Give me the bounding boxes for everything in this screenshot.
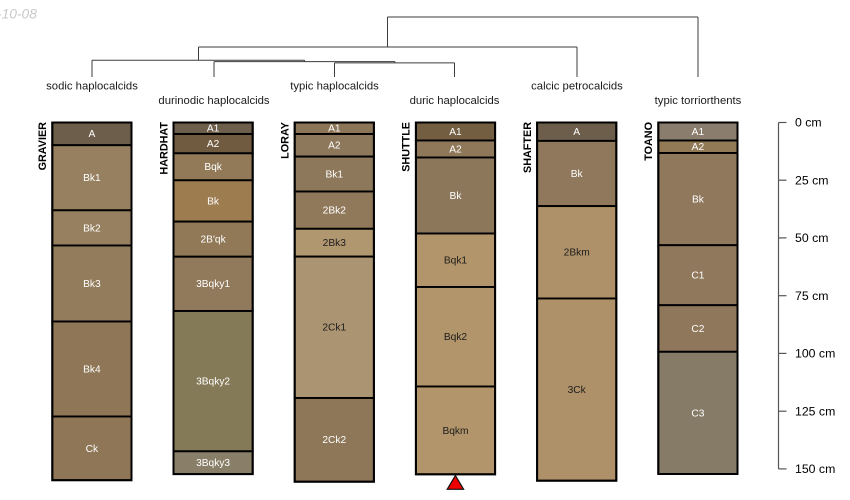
svg-text:25 cm: 25 cm [795,173,829,187]
svg-text:A2: A2 [692,142,705,153]
svg-text:2Ck2: 2Ck2 [322,435,346,446]
svg-text:Bk4: Bk4 [83,364,101,375]
svg-text:C3: C3 [691,408,704,419]
svg-text:3Bqky3: 3Bqky3 [196,458,230,469]
svg-text:Bqk1: Bqk1 [444,256,468,267]
svg-text:Bk1: Bk1 [83,173,101,184]
svg-text:durinodic haplocalcids: durinodic haplocalcids [158,95,270,107]
svg-text:typic torriorthents: typic torriorthents [655,95,742,107]
svg-text:A: A [89,129,96,140]
svg-text:HARDHAT: HARDHAT [158,122,170,175]
svg-text:C1: C1 [691,271,704,282]
svg-text:Ck: Ck [86,444,99,455]
svg-text:2Bkm: 2Bkm [564,248,590,259]
svg-text:2Bk2: 2Bk2 [323,206,347,217]
svg-text:SHUTTLE: SHUTTLE [401,122,413,172]
svg-text:A1: A1 [692,127,705,138]
svg-text:125 cm: 125 cm [795,404,835,418]
svg-text:GRAVIER: GRAVIER [37,122,49,171]
svg-text:3Ck: 3Ck [568,385,587,396]
svg-text:Bk: Bk [450,191,463,202]
svg-text:Bqkm: Bqkm [442,426,468,437]
svg-text:2Ck1: 2Ck1 [322,323,346,334]
svg-text:A: A [573,127,580,138]
svg-text:2Bk3: 2Bk3 [323,238,347,249]
svg-text:Bk2: Bk2 [83,223,101,234]
svg-text:Bqk: Bqk [204,162,222,173]
svg-text:A2: A2 [207,139,220,150]
svg-text:150 cm: 150 cm [795,462,835,476]
svg-text:50 cm: 50 cm [795,231,829,245]
svg-text:100 cm: 100 cm [795,347,835,361]
svg-text:2B'qk: 2B'qk [201,235,227,246]
svg-text:Bk3: Bk3 [83,279,101,290]
svg-text:calcic petrocalcids: calcic petrocalcids [531,81,623,93]
svg-text:3Bqky1: 3Bqky1 [196,279,230,290]
svg-text:Bk: Bk [692,195,705,206]
svg-text:TOANO: TOANO [643,122,655,161]
svg-text:Bqk2: Bqk2 [444,332,468,343]
svg-text:A1: A1 [449,127,462,138]
svg-text:sodic haplocalcids: sodic haplocalcids [46,81,138,93]
svg-text:75 cm: 75 cm [795,289,829,303]
svg-text:LORAY: LORAY [280,121,292,159]
svg-text:A2: A2 [449,144,462,155]
svg-text:Bk: Bk [571,169,584,180]
svg-text:duric haplocalcids: duric haplocalcids [410,95,500,107]
svg-text:A2: A2 [328,141,341,152]
svg-text:Bk: Bk [207,196,220,207]
svg-text:-10-08: -10-08 [0,7,37,22]
svg-text:C2: C2 [691,324,704,335]
svg-text:0 cm: 0 cm [795,116,822,130]
svg-text:SHAFTER: SHAFTER [522,122,534,173]
svg-text:3Bqky2: 3Bqky2 [196,377,230,388]
svg-text:typic haplocalcids: typic haplocalcids [290,81,379,93]
svg-text:Bk1: Bk1 [326,170,344,181]
